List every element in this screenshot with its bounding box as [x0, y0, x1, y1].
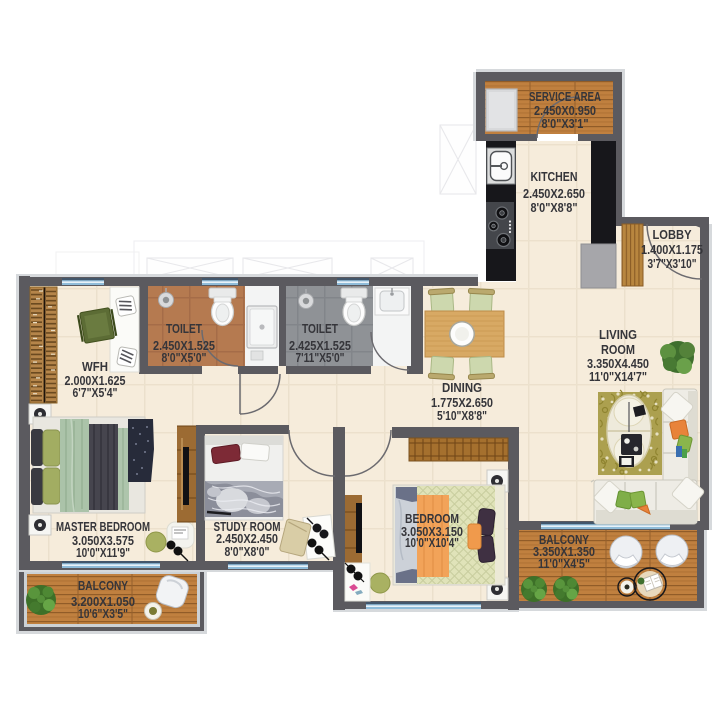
svg-text:6'7"X5'4": 6'7"X5'4" [73, 385, 118, 400]
svg-text:8'0"X8'8": 8'0"X8'8" [531, 200, 578, 215]
svg-text:5'10"X8'8": 5'10"X8'8" [437, 408, 487, 423]
svg-text:TOILET: TOILET [166, 322, 202, 336]
svg-text:LIVING: LIVING [599, 328, 637, 342]
svg-text:3'7"X3'10": 3'7"X3'10" [648, 256, 697, 271]
svg-text:BALCONY: BALCONY [78, 579, 129, 593]
svg-text:SERVICE AREA: SERVICE AREA [529, 90, 601, 104]
svg-text:7'11"X5'0": 7'11"X5'0" [296, 350, 345, 365]
svg-text:LOBBY: LOBBY [653, 228, 693, 242]
svg-text:10'0"X11'9": 10'0"X11'9" [76, 545, 130, 560]
svg-text:KITCHEN: KITCHEN [531, 170, 578, 184]
svg-text:8'0"X3'1": 8'0"X3'1" [542, 116, 589, 131]
svg-text:11'0"X14'7": 11'0"X14'7" [589, 369, 647, 384]
svg-text:WFH: WFH [82, 360, 108, 374]
svg-text:1.400X1.175: 1.400X1.175 [641, 242, 703, 257]
svg-text:MASTER BEDROOM: MASTER BEDROOM [56, 520, 150, 534]
svg-text:10'0"X10'4": 10'0"X10'4" [405, 535, 459, 550]
svg-text:11'0"X4'5": 11'0"X4'5" [538, 556, 590, 571]
svg-text:2.450X2.650: 2.450X2.650 [523, 186, 585, 201]
svg-text:TOILET: TOILET [302, 322, 338, 336]
svg-text:ROOM: ROOM [601, 343, 635, 357]
svg-text:8'0"X8'0": 8'0"X8'0" [225, 544, 270, 559]
svg-text:8'0"X5'0": 8'0"X5'0" [162, 350, 207, 365]
svg-text:DINING: DINING [442, 381, 482, 395]
svg-text:10'6"X3'5": 10'6"X3'5" [78, 606, 128, 621]
